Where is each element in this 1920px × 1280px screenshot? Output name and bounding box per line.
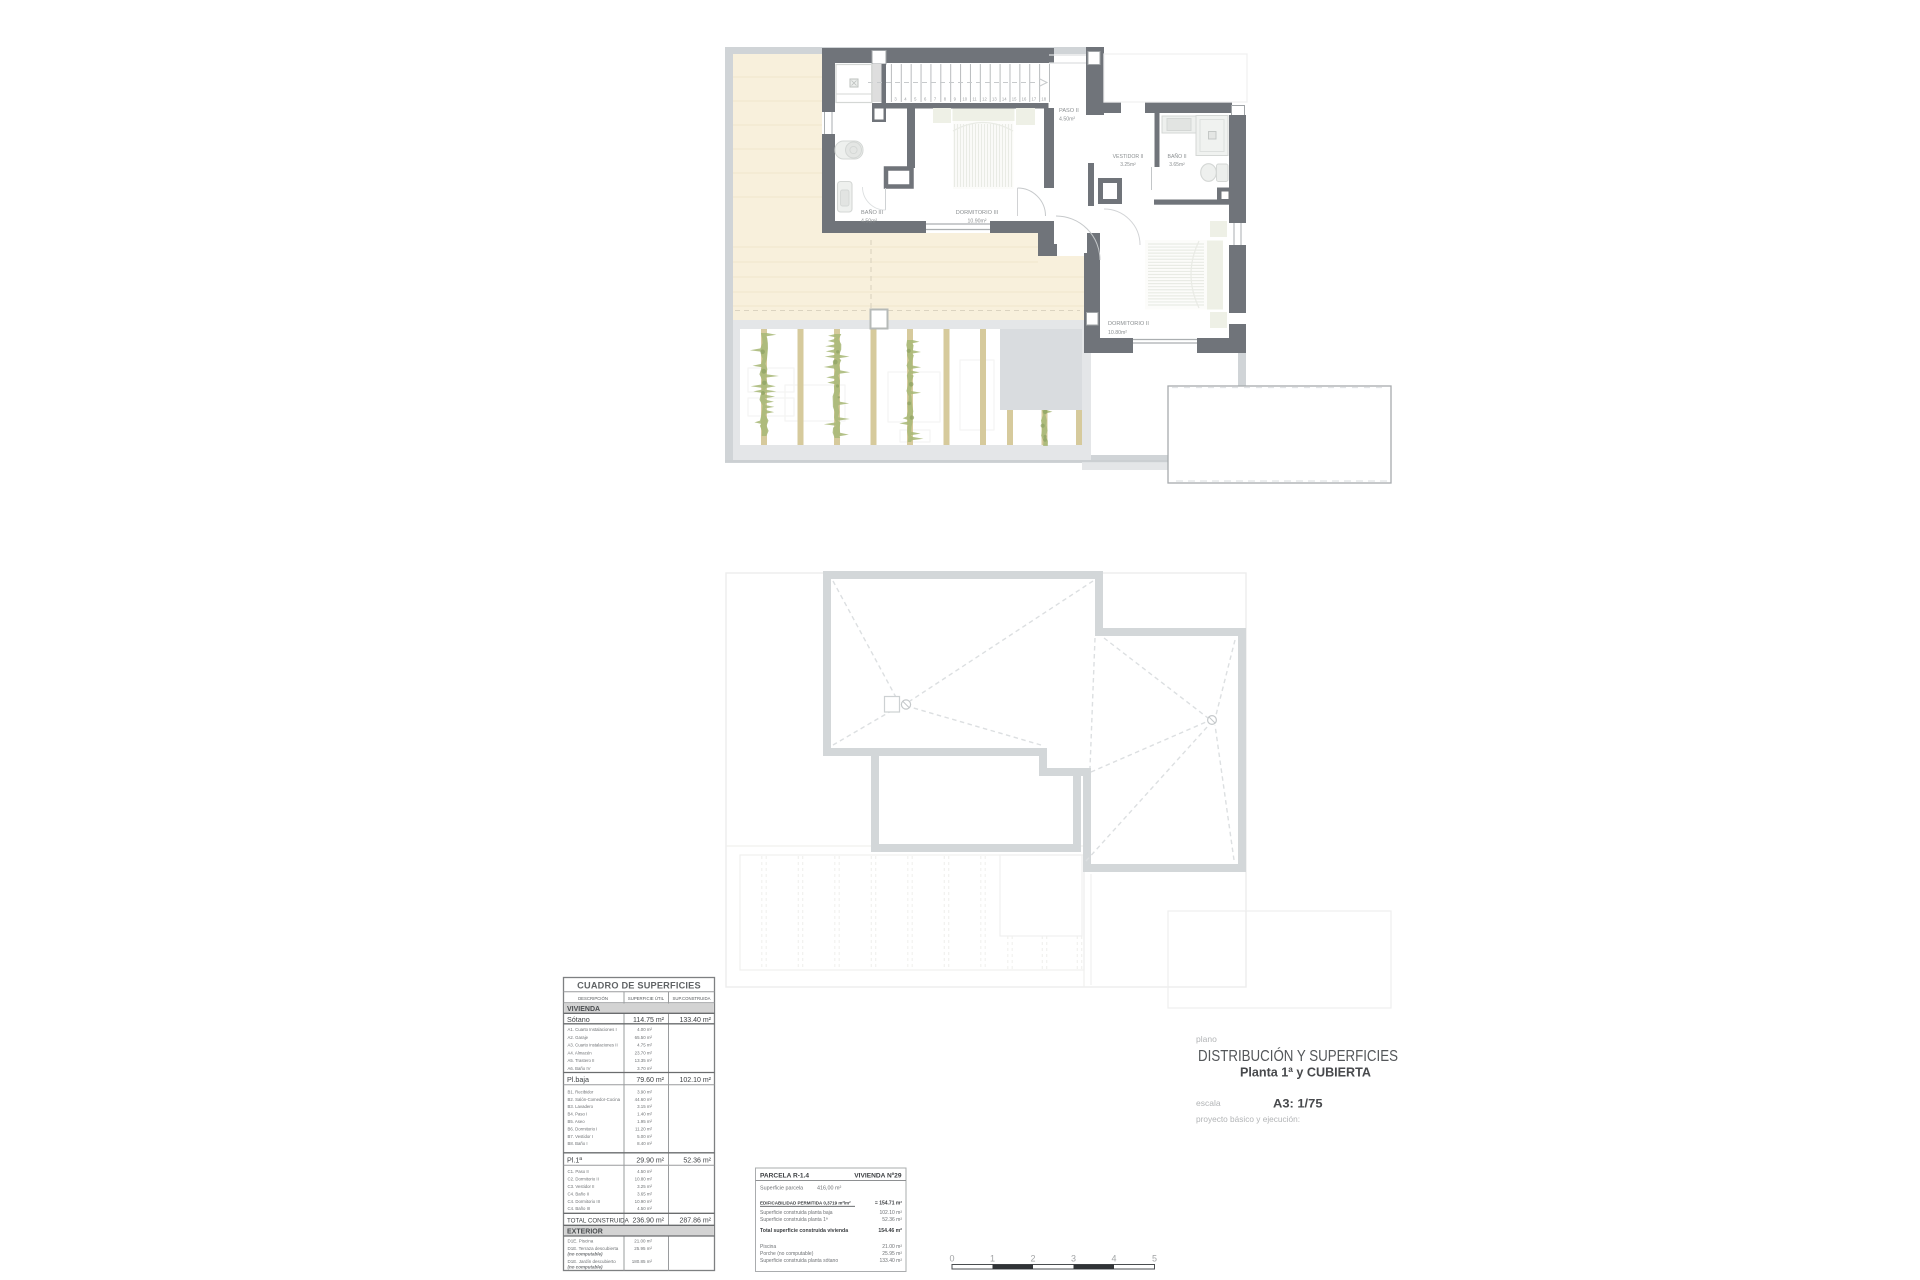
svg-text:C4. Baño III: C4. Baño III (568, 1206, 591, 1211)
svg-text:133.40 m²: 133.40 m² (879, 1258, 902, 1264)
svg-text:B2. Salón-Comedor-Cocina: B2. Salón-Comedor-Cocina (568, 1097, 621, 1102)
svg-text:8.40 m²: 8.40 m² (637, 1141, 652, 1146)
svg-text:A3. Cuarto instalaciones II: A3. Cuarto instalaciones II (568, 1043, 618, 1048)
svg-text:VESTIDOR II: VESTIDOR II (1113, 154, 1144, 160)
svg-text:79.60 m²: 79.60 m² (636, 1077, 664, 1084)
svg-text:21.00 m²: 21.00 m² (634, 1239, 652, 1244)
svg-text:B6. Dormitorio I: B6. Dormitorio I (568, 1126, 598, 1131)
svg-text:B8. Baño I: B8. Baño I (568, 1141, 588, 1146)
svg-text:10: 10 (962, 97, 967, 102)
svg-text:1.95 m²: 1.95 m² (637, 1119, 652, 1124)
svg-text:= 154.71 m²: = 154.71 m² (875, 1201, 902, 1207)
svg-text:4.75 m²: 4.75 m² (637, 1043, 652, 1048)
svg-text:B1. Recibidor: B1. Recibidor (568, 1089, 594, 1094)
svg-text:DISTRIBUCIÓN Y SUPERFICIES: DISTRIBUCIÓN Y SUPERFICIES (1198, 1046, 1398, 1065)
svg-text:154.46 m²: 154.46 m² (878, 1228, 902, 1234)
svg-text:B3. Lavadero: B3. Lavadero (568, 1104, 594, 1109)
svg-text:A2. Garaje: A2. Garaje (568, 1035, 589, 1040)
svg-text:52.36 m²: 52.36 m² (683, 1158, 711, 1165)
svg-text:SUPERFICIE ÚTIL: SUPERFICIE ÚTIL (628, 996, 665, 1001)
svg-text:VIVIENDA: VIVIENDA (567, 1006, 600, 1013)
svg-text:25.95 m²: 25.95 m² (882, 1251, 902, 1257)
svg-text:B4. Paso I: B4. Paso I (568, 1112, 588, 1117)
svg-text:3.90 m²: 3.90 m² (637, 1089, 652, 1094)
svg-text:3.65m²: 3.65m² (1169, 162, 1185, 168)
svg-text:12: 12 (982, 97, 987, 102)
svg-text:3.70 m²: 3.70 m² (637, 1066, 652, 1071)
svg-text:287.86 m²: 287.86 m² (679, 1218, 711, 1225)
svg-text:3.25 m²: 3.25 m² (637, 1184, 652, 1189)
svg-text:10.80 m²: 10.80 m² (635, 1177, 653, 1182)
svg-text:plano: plano (1196, 1034, 1217, 1044)
svg-text:CUADRO DE SUPERFICIES: CUADRO DE SUPERFICIES (577, 981, 701, 991)
svg-text:3.15 m²: 3.15 m² (637, 1104, 652, 1109)
svg-text:A6. Baño IV: A6. Baño IV (568, 1066, 591, 1071)
svg-text:13: 13 (992, 97, 997, 102)
svg-text:102.10 m²: 102.10 m² (879, 1210, 902, 1216)
svg-text:5: 5 (1152, 1254, 1157, 1264)
svg-text:Sótano: Sótano (567, 1015, 590, 1024)
svg-text:proyecto básico y ejecución:: proyecto básico y ejecución: (1196, 1114, 1300, 1124)
svg-text:PARCELA R-1.4: PARCELA R-1.4 (760, 1173, 809, 1180)
svg-text:10.80m²: 10.80m² (1108, 330, 1127, 336)
svg-text:2: 2 (1030, 1254, 1035, 1264)
svg-text:Superficie construida planta b: Superficie construida planta baja (760, 1210, 833, 1216)
svg-text:16: 16 (1022, 97, 1027, 102)
svg-text:236.90 m²: 236.90 m² (632, 1218, 664, 1225)
svg-text:SUP.CONSTRUIDA: SUP.CONSTRUIDA (673, 996, 711, 1001)
svg-text:EDIFICABILIDAD PERMITIDA 0,37: EDIFICABILIDAD PERMITIDA 0,3719 m²/m² (760, 1201, 851, 1206)
svg-text:C3. Vestidor II: C3. Vestidor II (568, 1184, 595, 1189)
svg-text:4.50 m²: 4.50 m² (637, 1169, 652, 1174)
svg-text:B7. Vestidor I: B7. Vestidor I (568, 1134, 594, 1139)
svg-text:D1E. Jardín descubierto: D1E. Jardín descubierto (568, 1259, 617, 1264)
svg-text:A1. Cuarto Instalaciones I: A1. Cuarto Instalaciones I (568, 1027, 617, 1032)
svg-text:4.50 m²: 4.50 m² (637, 1206, 652, 1211)
svg-text:65.50 m²: 65.50 m² (635, 1035, 653, 1040)
svg-text:Planta 1ª y CUBIERTA: Planta 1ª y CUBIERTA (1240, 1066, 1371, 1080)
svg-text:114.75 m²: 114.75 m² (633, 1017, 665, 1024)
svg-text:escala: escala (1196, 1098, 1221, 1108)
svg-text:DORMITORIO II: DORMITORIO II (1108, 321, 1149, 327)
svg-text:52.36 m²: 52.36 m² (882, 1217, 902, 1223)
svg-text:D1E. Terraza descubierta: D1E. Terraza descubierta (568, 1246, 619, 1251)
svg-text:10.90 m²: 10.90 m² (635, 1199, 653, 1204)
svg-text:TOTAL CONSTRUIDA: TOTAL CONSTRUIDA (567, 1218, 630, 1225)
svg-text:B5. Aseo: B5. Aseo (568, 1119, 586, 1124)
svg-text:EXTERIOR: EXTERIOR (567, 1229, 603, 1236)
svg-text:1: 1 (990, 1254, 995, 1264)
svg-text:VIVIENDA Nº29: VIVIENDA Nº29 (854, 1173, 902, 1180)
svg-text:11.20 m²: 11.20 m² (635, 1126, 653, 1131)
svg-text:18: 18 (1041, 97, 1046, 102)
svg-text:4.50m²: 4.50m² (1059, 117, 1075, 123)
svg-text:BAÑO II: BAÑO II (1167, 153, 1186, 160)
svg-text:Pl.baja: Pl.baja (567, 1075, 589, 1084)
svg-text:44.60 m²: 44.60 m² (635, 1097, 653, 1102)
svg-text:A4. Almacén: A4. Almacén (568, 1050, 593, 1055)
svg-text:4.00 m²: 4.00 m² (637, 1027, 652, 1032)
svg-text:0: 0 (949, 1254, 954, 1264)
svg-text:14: 14 (1002, 97, 1007, 102)
svg-text:C4. Dormitorio III: C4. Dormitorio III (568, 1199, 600, 1204)
svg-text:(no computable): (no computable) (568, 1264, 603, 1269)
svg-text:3: 3 (1071, 1254, 1076, 1264)
svg-text:Superficie construida planta s: Superficie construida planta sótano (760, 1258, 838, 1264)
svg-text:C4. Baño II: C4. Baño II (568, 1191, 590, 1196)
svg-text:13.35 m²: 13.35 m² (635, 1058, 653, 1063)
svg-text:17: 17 (1032, 97, 1037, 102)
svg-text:Pl.1ª: Pl.1ª (567, 1156, 582, 1165)
svg-text:Superficie construida planta 1: Superficie construida planta 1ª (760, 1217, 828, 1223)
svg-text:DORMITORIO III: DORMITORIO III (956, 210, 999, 216)
svg-text:(no computable): (no computable) (568, 1251, 603, 1256)
svg-text:A3: 1/75: A3: 1/75 (1273, 1097, 1323, 1111)
svg-text:BAÑO III: BAÑO III (861, 209, 884, 216)
svg-text:A5. Trastero II: A5. Trastero II (568, 1058, 595, 1063)
svg-text:11: 11 (972, 97, 977, 102)
svg-text:102.10 m²: 102.10 m² (679, 1077, 711, 1084)
svg-text:DESCRIPCIÓN: DESCRIPCIÓN (578, 996, 608, 1001)
svg-text:23.70 m²: 23.70 m² (635, 1050, 653, 1055)
svg-text:C2. Dormitorio II: C2. Dormitorio II (568, 1177, 599, 1182)
svg-text:Porche (no computable): Porche (no computable) (760, 1251, 814, 1257)
svg-text:180.85 m²: 180.85 m² (632, 1259, 653, 1264)
svg-text:3.25m²: 3.25m² (1120, 162, 1136, 168)
svg-text:21.00 m²: 21.00 m² (882, 1244, 902, 1250)
svg-text:5.00 m²: 5.00 m² (637, 1134, 652, 1139)
svg-text:25.95 m²: 25.95 m² (634, 1246, 652, 1251)
svg-text:416,00 m²: 416,00 m² (817, 1186, 841, 1192)
svg-text:PASO II: PASO II (1059, 108, 1079, 114)
svg-text:10.90m²: 10.90m² (967, 219, 986, 225)
svg-text:Piscina: Piscina (760, 1244, 776, 1250)
svg-text:Superficie parcela: Superficie parcela (760, 1186, 803, 1192)
svg-text:15: 15 (1012, 97, 1017, 102)
svg-text:133.40 m²: 133.40 m² (679, 1017, 711, 1024)
svg-text:4: 4 (1111, 1254, 1116, 1264)
svg-text:C1. Paso II: C1. Paso II (568, 1169, 589, 1174)
svg-text:29.90 m²: 29.90 m² (636, 1158, 664, 1165)
svg-text:D1E. Piscina: D1E. Piscina (568, 1239, 594, 1244)
svg-text:1.40 m²: 1.40 m² (637, 1112, 652, 1117)
svg-text:4.50m²: 4.50m² (861, 219, 877, 225)
svg-text:3.65 m²: 3.65 m² (637, 1191, 652, 1196)
svg-text:Total superficie construida vi: Total superficie construida vivienda (760, 1228, 848, 1234)
